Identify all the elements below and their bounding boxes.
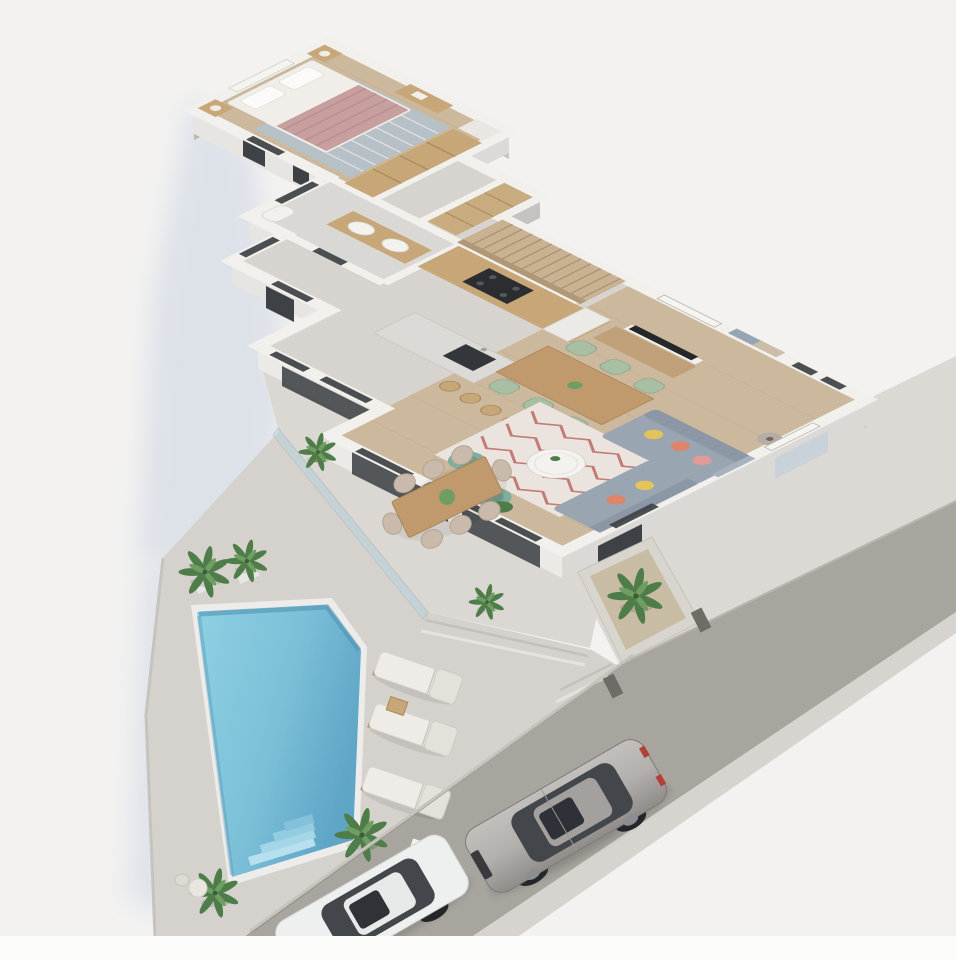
isometric-scene <box>0 0 956 960</box>
floor-plan-render <box>0 0 956 960</box>
bistro-chair <box>175 874 189 886</box>
bistro-table <box>189 879 207 897</box>
bottom-margin <box>0 936 956 960</box>
